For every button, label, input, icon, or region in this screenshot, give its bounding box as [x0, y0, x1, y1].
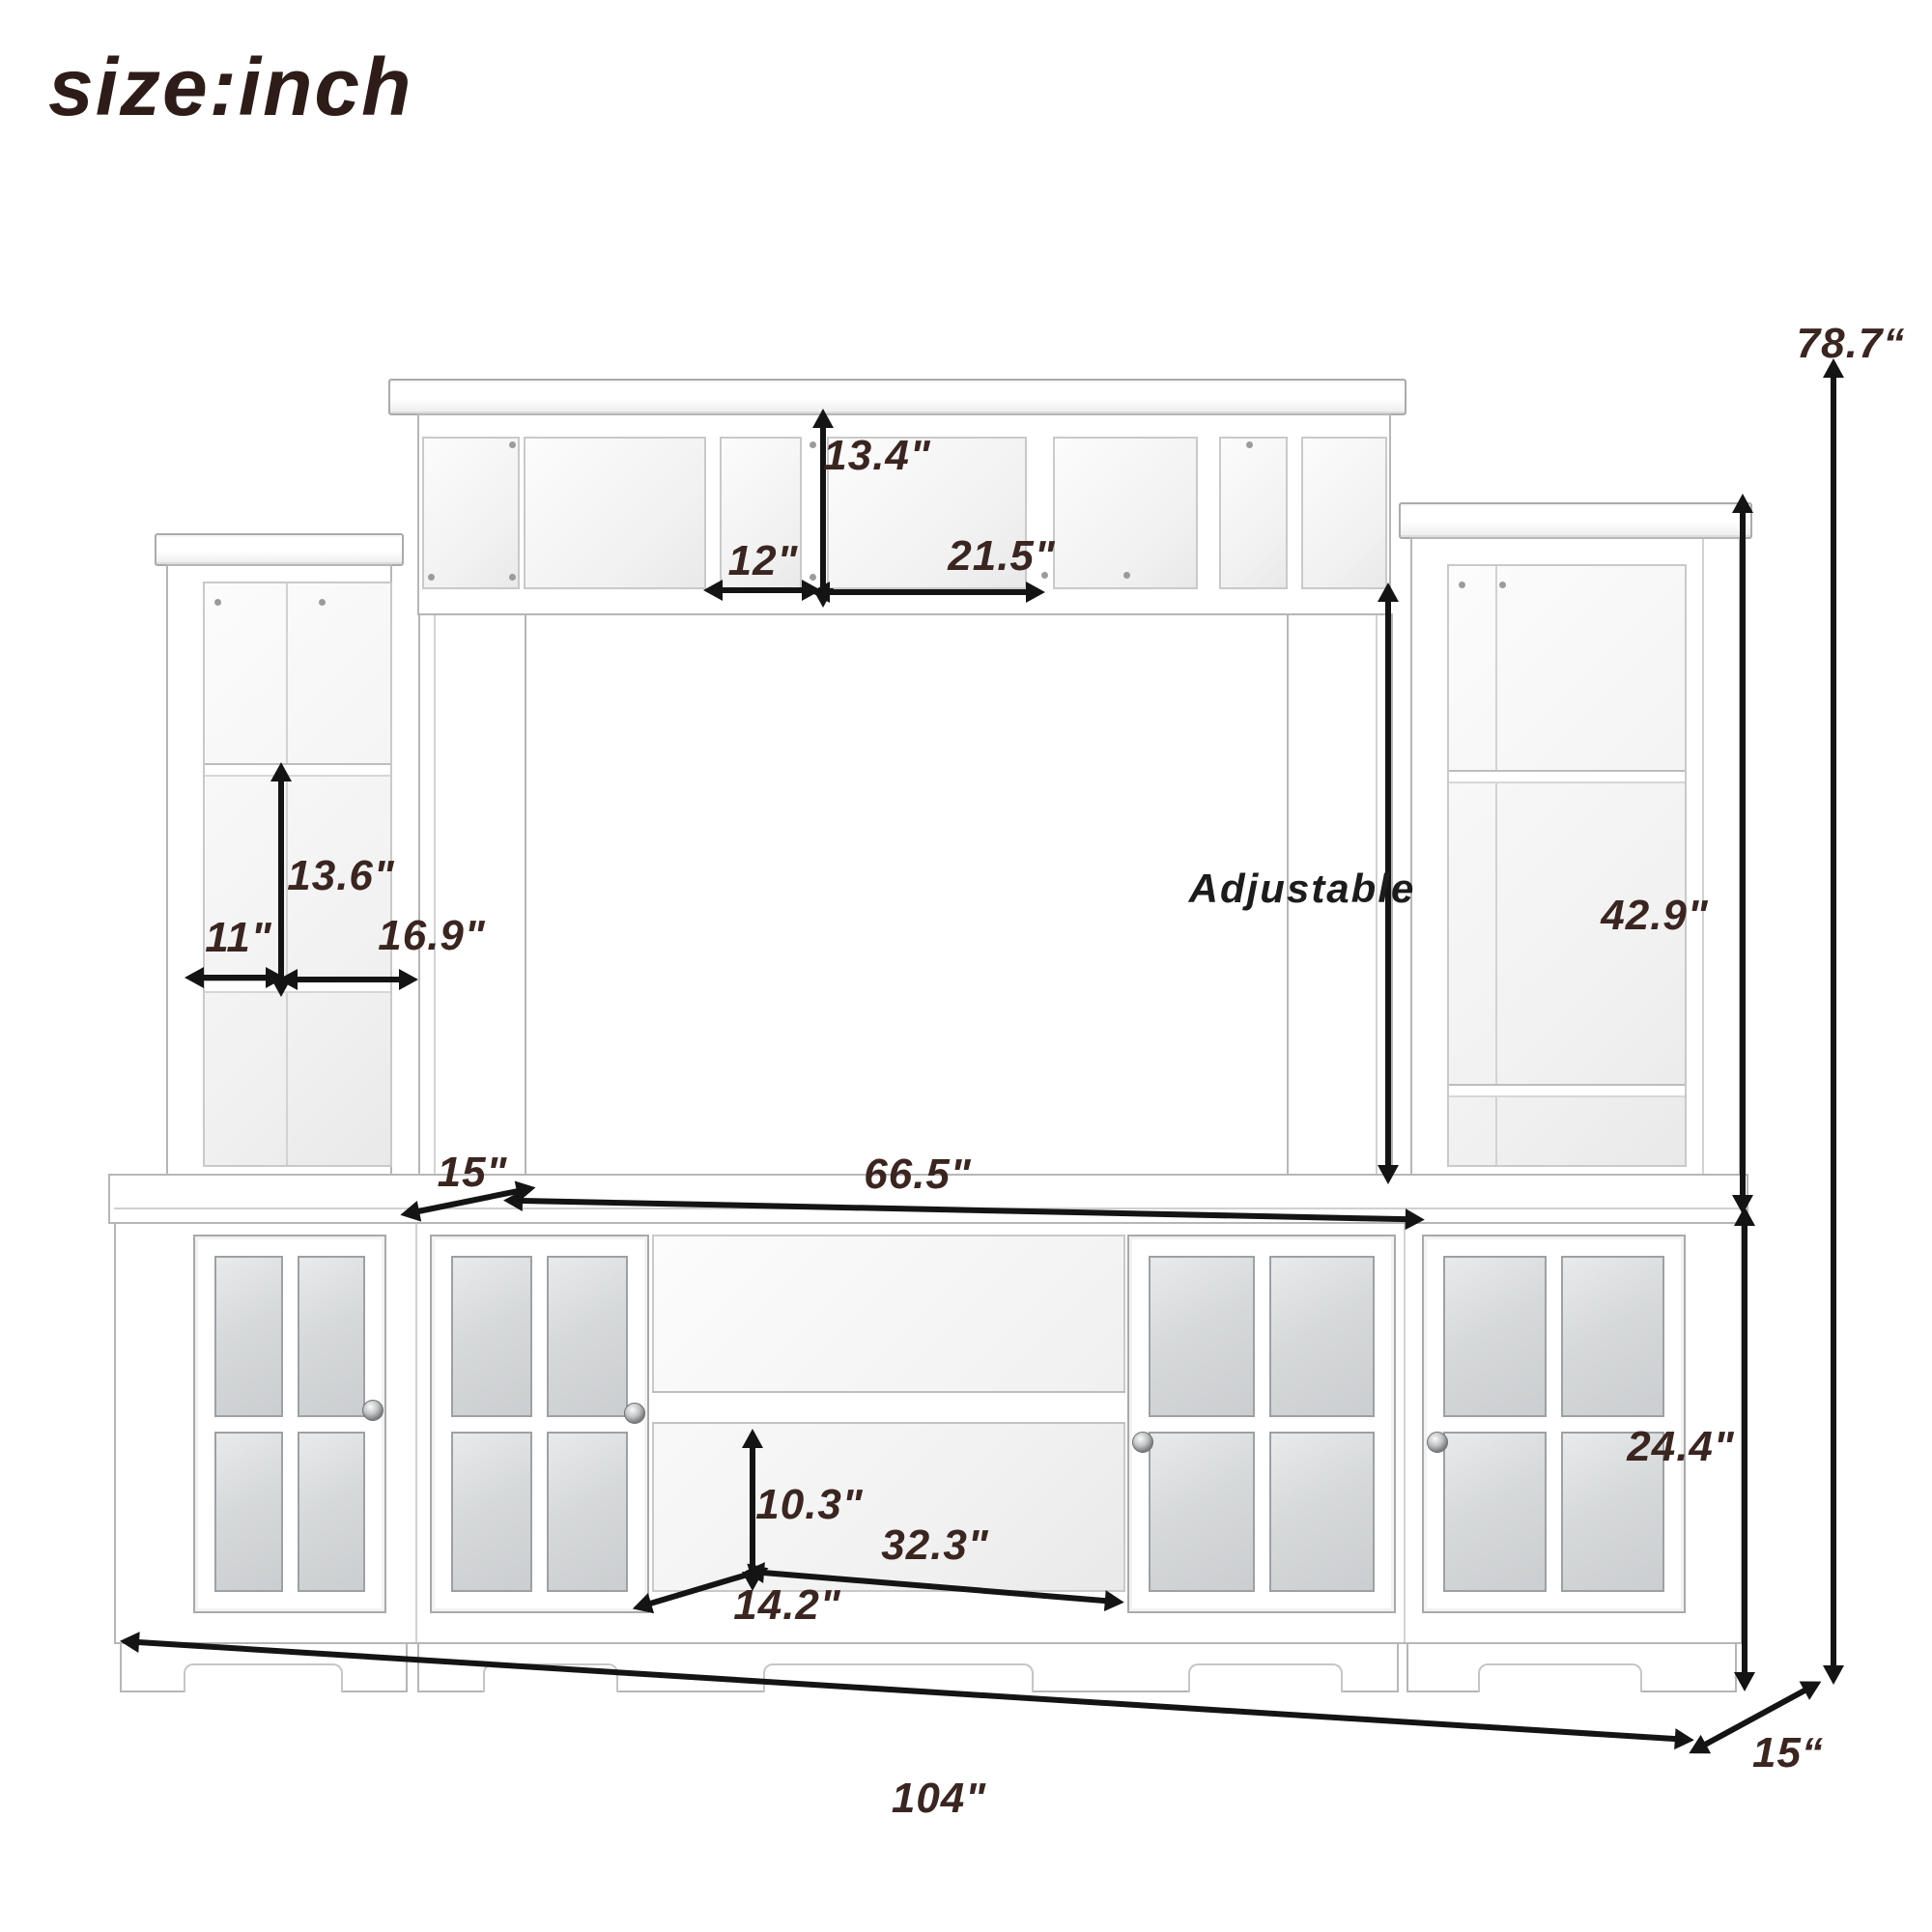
left-tower-crown-molding: [155, 533, 404, 566]
dim-label-right-tower: 42.9": [1601, 895, 1709, 937]
dim-label-total-height: 78.7“: [1797, 323, 1906, 365]
dim-label-console-depth: 14.2": [733, 1584, 841, 1627]
screw-icon: [1123, 572, 1130, 579]
screw-icon: [214, 599, 221, 606]
right-tower-shelf-1: [1449, 770, 1685, 783]
left-tower-shelf-1: [205, 763, 390, 777]
dim-label-shelf-width: 32.3": [881, 1524, 989, 1567]
glass-pane: [1269, 1256, 1376, 1417]
right-tower-back-corner-line: [1495, 566, 1497, 1165]
bridge-cubby-2: [524, 437, 706, 589]
glass-pane: [298, 1256, 366, 1417]
dim-arrow-tower-depth: [203, 975, 267, 980]
door-knob-1: [362, 1400, 384, 1421]
dim-arrow-base-height: [1742, 1225, 1747, 1673]
dim-label-tower-width: 16.9": [378, 915, 486, 957]
dim-label-base-depth: 15“: [1752, 1732, 1824, 1775]
glass-door-1: [193, 1235, 386, 1613]
dim-label-hutch-right: 21.5": [948, 535, 1056, 578]
dim-label-base-height: 24.4": [1627, 1426, 1735, 1468]
glass-pane: [214, 1256, 283, 1417]
glass-pane: [1443, 1432, 1547, 1593]
screw-icon: [1499, 582, 1506, 588]
screw-icon: [509, 574, 516, 581]
plinth-foot-cutout: [1478, 1663, 1642, 1692]
screw-icon: [810, 441, 816, 448]
left-pier-edge-line: [434, 615, 436, 1174]
glass-pane: [451, 1256, 532, 1417]
dim-label-total-width: 104": [892, 1777, 986, 1820]
dim-label-tower-shelf: 13.6": [287, 855, 395, 897]
glass-door-3: [1127, 1235, 1396, 1613]
dim-label-shelf-clearance: 10.3": [755, 1484, 864, 1526]
dim-label-hutch-left: 12": [728, 540, 799, 582]
size-diagram: size:inch: [0, 0, 1932, 1932]
door-knob-3: [1132, 1432, 1153, 1453]
dim-arrow-hutch-right-width: [829, 589, 1027, 595]
right-tower-shelf-2: [1449, 1084, 1685, 1097]
bridge-cubby-5: [1053, 437, 1198, 589]
media-middle-shelf: [652, 1391, 1125, 1424]
glass-pane: [451, 1432, 532, 1593]
door-knob-2: [624, 1403, 645, 1424]
screw-icon: [509, 441, 516, 448]
plinth-foot-cutout: [1188, 1663, 1343, 1692]
screw-icon: [1459, 582, 1465, 588]
dim-arrow-shelf-clearance: [750, 1447, 755, 1573]
base-module-divider-right: [1404, 1224, 1406, 1642]
right-tower-side-edge-line: [1702, 539, 1704, 1174]
glass-pane: [214, 1432, 283, 1593]
dim-arrow-tower-width: [297, 977, 400, 982]
dim-arrow-right-tower-height: [1740, 512, 1746, 1196]
glass-pane: [547, 1256, 628, 1417]
glass-pane: [298, 1432, 366, 1593]
door-knob-4: [1427, 1432, 1448, 1453]
bridge-cubby-6: [1219, 437, 1288, 589]
glass-pane: [1149, 1432, 1255, 1593]
glass-pane: [547, 1432, 628, 1593]
bridge-crown-molding: [388, 379, 1406, 415]
screw-icon: [319, 599, 326, 606]
dim-arrow-tower-shelf-height: [278, 781, 284, 979]
dim-label-adjustable: Adjustable: [1189, 868, 1416, 909]
page-title: size:inch: [48, 41, 412, 134]
glass-door-2: [430, 1235, 649, 1613]
dim-arrow-total-height: [1831, 377, 1836, 1666]
dim-label-hutch-height: 13.4": [823, 435, 931, 477]
dim-label-pier-depth: 15": [438, 1151, 508, 1194]
glass-pane: [1443, 1256, 1547, 1417]
plinth-foot-cutout: [184, 1663, 343, 1692]
bridge-cubby-7: [1301, 437, 1387, 589]
screw-icon: [428, 574, 435, 581]
dim-label-tower-depth: 11": [205, 917, 272, 959]
right-tower-opening: [1447, 564, 1687, 1167]
right-tower-crown-molding: [1399, 502, 1752, 539]
base-module-divider-left: [415, 1224, 417, 1642]
glass-pane: [1269, 1432, 1376, 1593]
glass-pane: [1149, 1256, 1255, 1417]
glass-pane: [1561, 1256, 1664, 1417]
dim-label-console-width: 66.5": [864, 1153, 972, 1196]
dim-arrow-hutch-left-width: [722, 587, 803, 593]
bridge-cubby-1: [422, 437, 520, 589]
screw-icon: [1246, 441, 1253, 448]
